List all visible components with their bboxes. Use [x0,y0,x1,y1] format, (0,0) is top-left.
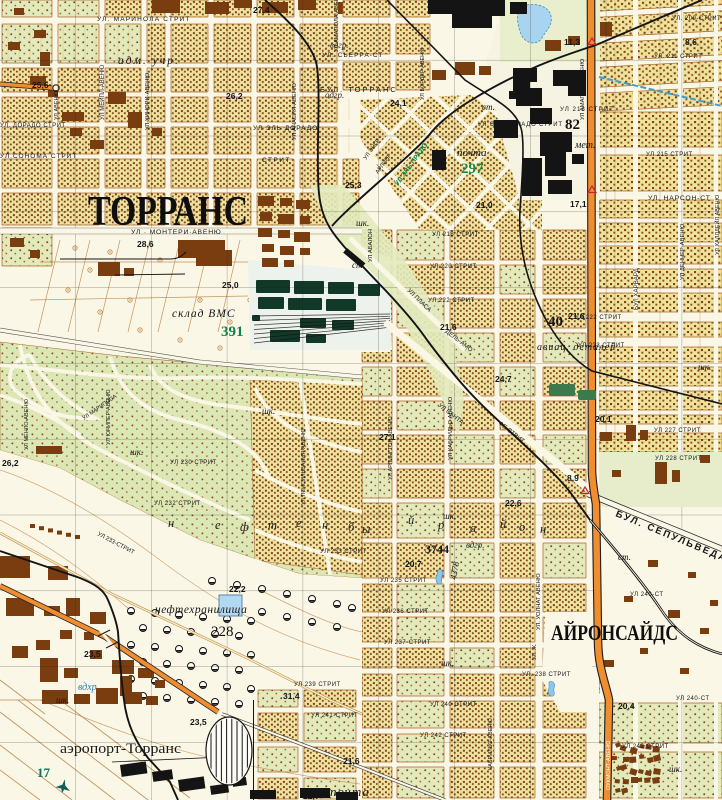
svg-text:УЛ 242 СТРИТ: УЛ 242 СТРИТ [622,744,669,750]
svg-text:УЛ 233 СТРИТ: УЛ 233 СТРИТ [320,549,367,555]
svg-text:КАБРИЛЬО-АВЕНЮ: КАБРИЛЬО-АВЕНЮ [488,718,494,770]
svg-text:УЛ 240-СТ: УЛ 240-СТ [676,696,710,702]
svg-text:22,7: 22,7 [303,791,320,800]
svg-text:20,1: 20,1 [595,414,612,424]
svg-text:297: 297 [461,161,484,177]
svg-text:20,7: 20,7 [405,559,422,569]
svg-text:22,2: 22,2 [229,584,246,594]
svg-text:22,6: 22,6 [505,498,522,508]
svg-text:УЛ ПЕНСИЛЬВАНИЯ-АВЕНЮ: УЛ ПЕНСИЛЬВАНИЯ-АВЕНЮ [301,428,307,505]
svg-text:82: 82 [565,117,580,133]
svg-text:шк.: шк. [262,406,275,416]
svg-text:ф: ф [240,520,249,534]
svg-text:УЛ 222 СТРИТ: УЛ 222 СТРИТ [428,298,475,304]
svg-text:шк.: шк. [356,218,369,228]
svg-text:одгр.: одгр. [325,90,344,100]
svg-text:й: й [500,517,507,531]
svg-text:й: й [408,513,415,527]
svg-text:11,3: 11,3 [564,37,580,47]
svg-text:вдгр.: вдгр. [466,540,485,550]
svg-text:391: 391 [221,324,244,340]
svg-text:17,1: 17,1 [570,199,587,209]
svg-text:26,2: 26,2 [226,91,243,101]
svg-text:е: е [215,518,221,532]
svg-text:УЛ КАБРИЛЬО АВЕНЮ: УЛ КАБРИЛЬО АВЕНЮ [448,397,454,460]
svg-text:23,5: 23,5 [190,717,207,727]
svg-text:почта: почта [330,784,370,799]
svg-text:25,0: 25,0 [222,280,239,290]
svg-text:УЛ ЭЛЬ ДОРАДО СТРИТ: УЛ ЭЛЬ ДОРАДО СТРИТ [478,122,563,128]
svg-text:УЛ 230 СТРИТ: УЛ 230 СТРИТ [170,460,217,466]
svg-text:УЛ ДЕННЕР-АВЕНЮ: УЛ ДЕННЕР-АВЕНЮ [680,223,686,280]
svg-text:УЛ 218 СТРИТ: УЛ 218 СТРИТ [432,232,479,238]
svg-text:ст.: ст. [352,260,365,270]
svg-text:УЛ.АНАСИЯ-АВЕНЮ: УЛ.АНАСИЯ-АВЕНЮ [292,83,298,140]
svg-text:УЛ ХАЛЛДЕЙЛ АВЕНЮ: УЛ ХАЛЛДЕЙЛ АВЕНЮ [713,194,721,255]
svg-text:31,4: 31,4 [283,691,300,701]
svg-text:25,3: 25,3 [345,180,362,190]
svg-text:УЛ 239 СТРИТ: УЛ 239 СТРИТ [294,682,341,688]
svg-text:шк.: шк. [441,658,454,668]
svg-text:шк.: шк. [698,362,711,372]
svg-text:нефтехранилища: нефтехранилища [155,604,247,616]
svg-text:28,6: 28,6 [137,239,154,249]
svg-text:УЛ 242 СТРИТ: УЛ 242 СТРИТ [420,733,467,739]
svg-text:ОУКМОНТ-АВЕНЮ: ОУКМОНТ-АВЕНЮ [606,740,612,790]
svg-text:УЛ 236 СТРИТ: УЛ 236 СТРИТ [382,609,429,615]
svg-text:УЛ АМАПОЛА-АВЕНЮ: УЛ АМАПОЛА-АВЕНЮ [580,59,586,120]
svg-text:24,1: 24,1 [390,98,407,108]
svg-text:УЛ. ДОРАДО СТРИТ: УЛ. ДОРАДО СТРИТ [0,123,66,129]
svg-text:АЙРОНСАЙДС: АЙРОНСАЙДС [551,620,678,645]
svg-text:23,5: 23,5 [84,649,101,659]
svg-text:УЛ. 211 СТРИТ: УЛ. 211 СТРИТ [654,54,702,60]
svg-text:почта: почта [457,147,487,159]
svg-text:УЛ МЕНЛО-АВЕНЮ: УЛ МЕНЛО-АВЕНЮ [24,399,30,450]
svg-text:СТРИТ: СТРИТ [262,157,291,164]
svg-text:26,2: 26,2 [2,458,19,468]
svg-text:27,4: 27,4 [253,5,270,15]
svg-text:УЛ ЭЛЬ ДОРАДО: УЛ ЭЛЬ ДОРАДО [253,125,318,132]
svg-text:аэропорт-Торранс: аэропорт-Торранс [60,741,181,757]
svg-text:УЛ 213 СТРИТ: УЛ 213 СТРИТ [560,106,614,113]
svg-text:н: н [168,516,174,530]
svg-text:УЛ. 209-СТРИТ: УЛ. 209-СТРИТ [672,16,721,22]
svg-text:УЛ · МОНТЕРИ·АВЕНЮ: УЛ · МОНТЕРИ·АВЕНЮ [131,229,222,236]
svg-text:8,6: 8,6 [685,37,697,47]
svg-text:УЛ. 238 СТРИТ: УЛ. 238 СТРИТ [522,672,571,678]
svg-text:р: р [437,518,444,532]
svg-text:адм. учр.: адм. учр. [118,55,180,67]
svg-text:УЛ ХИНОРИ-АВЕНЮ: УЛ ХИНОРИ-АВЕНЮ [145,73,151,130]
svg-text:УЛ 237-СТРИТ: УЛ 237-СТРИТ [384,640,431,646]
svg-text:УЛ 220 СТРИТ: УЛ 220 СТРИТ [430,264,477,270]
svg-text:н: н [540,522,546,536]
svg-text:ст.: ст. [618,552,631,562]
svg-text:шк.: шк. [130,447,143,457]
svg-text:УЛ.222 СТРИТ: УЛ.222 СТРИТ [575,315,622,321]
svg-text:УЛ 215 СТРИТ: УЛ 215 СТРИТ [646,152,693,158]
svg-text:УЛ.СОНОМА СТРИТ: УЛ.СОНОМА СТРИТ [0,153,77,160]
svg-text:УЛ 241-СТРИТ: УЛ 241-СТРИТ [311,713,358,719]
svg-text:шк.: шк. [443,511,456,521]
svg-text:вдхр.: вдхр. [78,682,99,693]
svg-text:УЛ АБАЛОН: УЛ АБАЛОН [368,229,374,262]
svg-text:шк.: шк. [56,695,69,705]
svg-text:УЛ. СЬЕРРА-СТ: УЛ. СЬЕРРА-СТ [322,52,383,59]
svg-text:21,0: 21,0 [476,200,493,210]
svg-text:УЛ. Ж.: УЛ. Ж. [532,643,538,660]
svg-text:УЛ 228 СТРИТ: УЛ 228 СТРИТ [655,456,702,462]
svg-text:21,6: 21,6 [343,756,360,766]
svg-text:25,6: 25,6 [32,80,49,90]
svg-text:УЛ. НАРСОН-СТ: УЛ. НАРСОН-СТ [648,195,711,202]
svg-text:н: н [322,518,328,532]
svg-text:склад ВМС: склад ВМС [172,308,236,320]
svg-text:228: 228 [211,624,234,640]
svg-text:40: 40 [548,314,563,330]
svg-text:ы: ы [362,522,371,536]
svg-text:е: е [296,516,302,530]
svg-text:УЛ 232 СТРИТ: УЛ 232 СТРИТ [154,501,201,507]
svg-text:шк.: шк. [669,764,682,774]
svg-text:УЛ АРЛИНГТОН-АВЕНЮ: УЛ АРЛИНГТОН-АВЕНЮ [388,416,394,480]
svg-text:УЛ 227 СТРИТ: УЛ 227 СТРИТ [654,428,701,434]
svg-text:8,9: 8,9 [567,473,579,483]
svg-text:УЛ БОРДЕР АВЕНЮ: УЛ БОРДЕР АВЕНЮ [420,47,426,100]
svg-text:о: о [519,520,525,534]
svg-text:УЛ.АВЕНЮ: УЛ.АВЕНЮ [54,91,60,120]
svg-text:мет.: мет. [574,140,596,151]
svg-text:б: б [348,520,355,534]
svg-text:УЛ 235 СТРИТ: УЛ 235 СТРИТ [380,578,427,584]
svg-text:а: а [470,521,476,535]
svg-text:УЛ МЕЙПЛ-АВЕНЮ: УЛ МЕЙПЛ-АВЕНЮ [98,65,106,120]
svg-text:БУЛ ХАРВАРД: БУЛ ХАРВАРД [633,267,640,310]
svg-text:20,4: 20,4 [618,701,635,711]
svg-text:УЛ 240-СТ: УЛ 240-СТ [630,592,664,598]
svg-text:УЛ 223 СТРИТ: УЛ 223 СТРИТ [578,343,625,349]
svg-text:17: 17 [37,765,51,780]
svg-text:вдгр.: вдгр. [330,40,349,50]
svg-text:ст.: ст. [482,102,495,112]
svg-text:УЛ 240 СТРИТ: УЛ 240 СТРИТ [430,702,477,708]
svg-text:т: т [268,518,277,532]
svg-text:3744: 3744 [425,542,449,556]
svg-text:УЛ. МАРИНОЛА СТРИТ: УЛ. МАРИНОЛА СТРИТ [97,16,191,23]
svg-text:24,7: 24,7 [495,374,512,384]
svg-text:УЛ. УОЛНАТ АВЕНЮ: УЛ. УОЛНАТ АВЕНЮ [536,573,542,630]
